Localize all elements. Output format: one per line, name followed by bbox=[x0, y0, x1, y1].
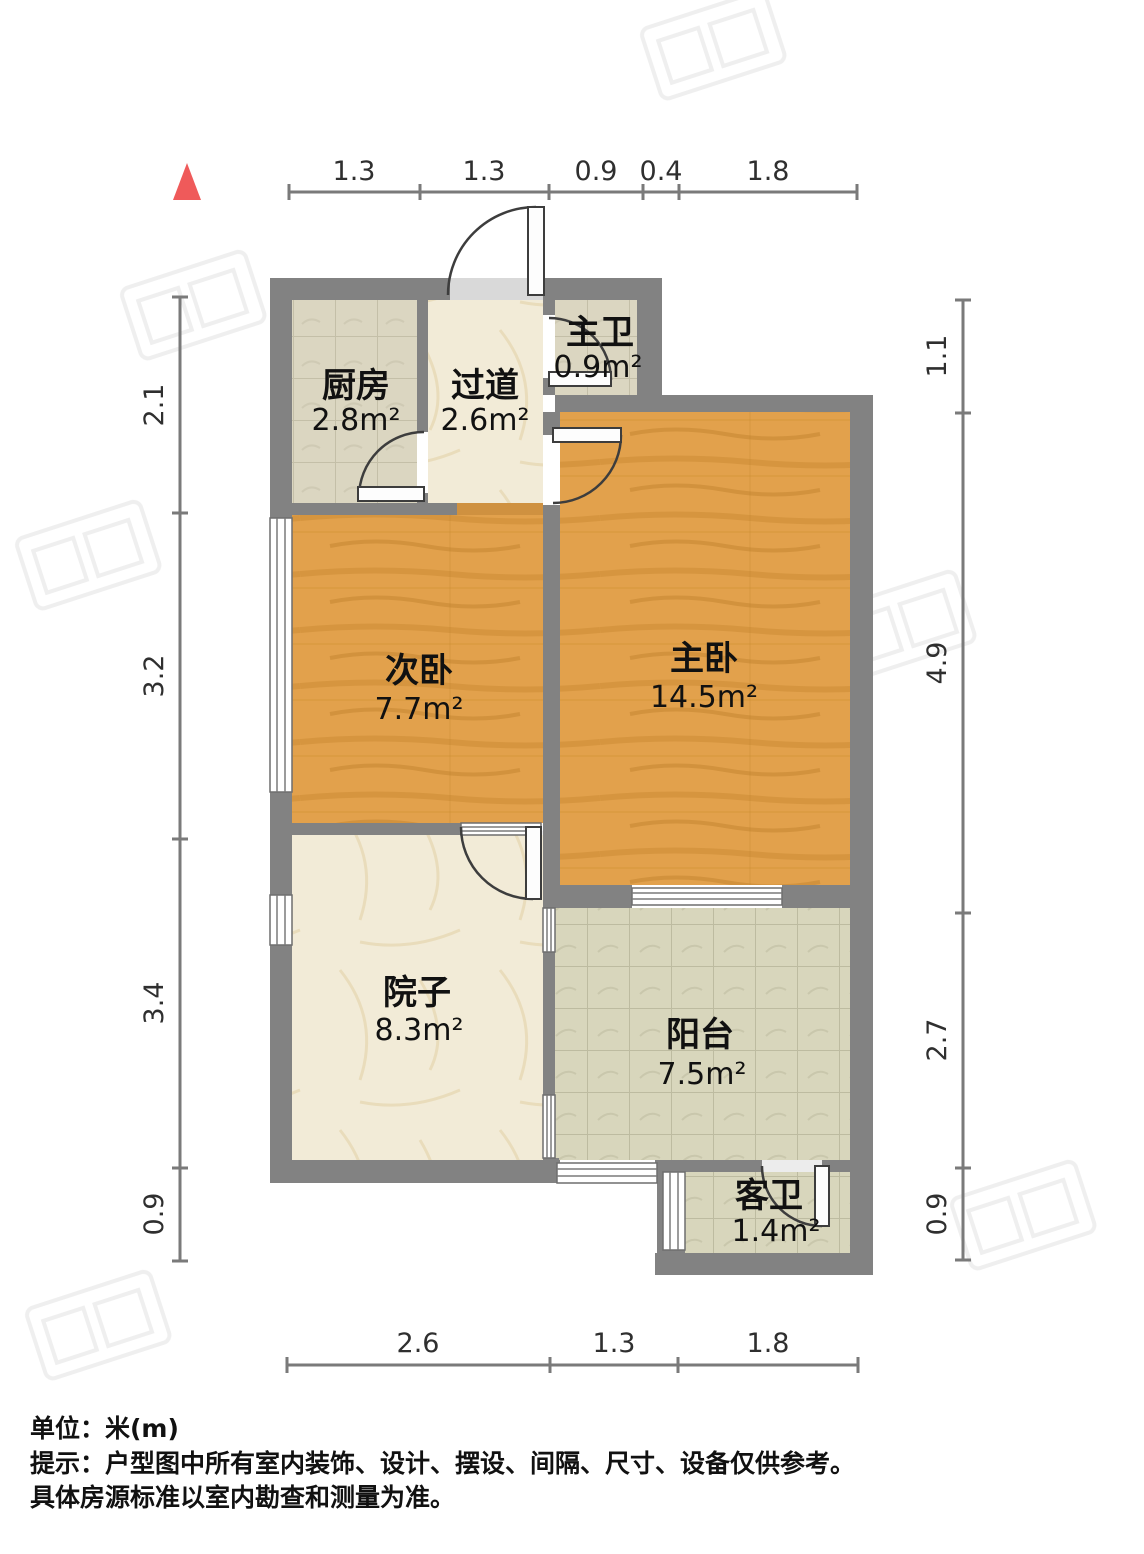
dim-top-1: 1.3 bbox=[333, 156, 376, 187]
master-bedroom-area: 14.5m² bbox=[650, 680, 758, 715]
dim-top-5: 1.8 bbox=[747, 156, 790, 187]
dim-right-1: 1.1 bbox=[922, 335, 953, 378]
dimension-top: 1.3 1.3 0.9 0.4 1.8 bbox=[289, 156, 857, 200]
courtyard-balcony-lower-window bbox=[543, 1095, 555, 1158]
hallway-area: 2.6m² bbox=[441, 403, 530, 438]
guest-bathroom-label: 客卫 bbox=[735, 1176, 803, 1216]
hallway-bedroom-opening bbox=[457, 503, 543, 515]
courtyard-area: 8.3m² bbox=[375, 1013, 464, 1048]
footer-notes: 单位：米(m) 提示：户型图中所有室内装饰、设计、摆设、间隔、尺寸、设备仅供参考… bbox=[30, 1414, 855, 1512]
wall-segment bbox=[543, 505, 560, 823]
dim-bottom-1: 2.6 bbox=[397, 1328, 440, 1359]
master-bathroom-label: 主卫 bbox=[566, 313, 634, 353]
courtyard-left-window bbox=[270, 895, 292, 945]
second-bedroom-area: 7.7m² bbox=[375, 692, 464, 727]
dim-left-4: 0.9 bbox=[139, 1193, 170, 1236]
dim-right-4: 0.9 bbox=[922, 1193, 953, 1236]
wall-segment bbox=[543, 952, 555, 1095]
wall-segment bbox=[543, 278, 662, 300]
wall-segment bbox=[270, 1160, 560, 1183]
watermark-stamp bbox=[120, 250, 267, 361]
wall-segment bbox=[417, 300, 428, 432]
watermark-stamp bbox=[25, 1270, 172, 1381]
dim-right-3: 2.7 bbox=[922, 1019, 953, 1062]
watermark-stamp bbox=[15, 500, 162, 611]
dim-bottom-3: 1.8 bbox=[747, 1328, 790, 1359]
dim-top-2: 1.3 bbox=[463, 156, 506, 187]
guest-bathroom-threshold bbox=[762, 1160, 822, 1172]
second-bedroom-label: 次卧 bbox=[385, 651, 453, 691]
master-bedroom-balcony-window bbox=[632, 888, 782, 905]
dimension-bottom: 2.6 1.3 1.8 bbox=[287, 1328, 858, 1373]
balcony-label: 阳台 bbox=[666, 1015, 734, 1055]
guest-bathroom-left-window bbox=[663, 1172, 685, 1250]
dim-right-2: 4.9 bbox=[922, 642, 953, 685]
tip-note-line2: 具体房源标准以室内勘查和测量为准。 bbox=[30, 1483, 455, 1512]
wall-segment bbox=[555, 885, 632, 908]
floorplan-svg: 厨房 2.8m² 过道 2.6m² 主卫 0.9m² 次卧 7.7m² 主卧 1… bbox=[0, 0, 1144, 1554]
watermark-stamp bbox=[640, 0, 787, 100]
dim-bottom-2: 1.3 bbox=[593, 1328, 636, 1359]
dim-left-1: 2.1 bbox=[139, 384, 170, 427]
wall-segment bbox=[655, 1253, 873, 1275]
dim-top-3: 0.9 bbox=[575, 156, 618, 187]
wall-segment bbox=[270, 823, 461, 835]
dim-left-2: 3.2 bbox=[139, 655, 170, 698]
wall-segment bbox=[270, 503, 457, 515]
master-bedroom-label: 主卧 bbox=[670, 639, 738, 679]
unit-note: 单位：米(m) bbox=[30, 1414, 179, 1443]
kitchen-label: 厨房 bbox=[322, 366, 390, 406]
wall-segment bbox=[782, 885, 873, 908]
balcony-area: 7.5m² bbox=[658, 1057, 747, 1092]
wall-segment bbox=[270, 278, 450, 300]
guest-bathroom-area: 1.4m² bbox=[732, 1214, 821, 1249]
courtyard-label: 院子 bbox=[383, 973, 451, 1013]
dimension-right: 1.1 4.9 2.7 0.9 bbox=[922, 300, 971, 1260]
wall-segment bbox=[655, 1160, 762, 1172]
master-bathroom-area: 0.9m² bbox=[554, 350, 643, 385]
kitchen-area: 2.8m² bbox=[312, 403, 401, 438]
courtyard-balcony-upper-window bbox=[543, 908, 555, 952]
dim-left-3: 3.4 bbox=[139, 982, 170, 1025]
north-arrow-icon bbox=[173, 163, 201, 200]
hallway-label: 过道 bbox=[451, 366, 519, 406]
wall-segment bbox=[555, 395, 873, 412]
dimension-left: 2.1 3.2 3.4 0.9 bbox=[139, 297, 188, 1261]
watermark-stamp bbox=[950, 1160, 1097, 1271]
dim-top-4: 0.4 bbox=[640, 156, 683, 187]
wall-segment bbox=[850, 412, 873, 1275]
second-bedroom-left-window bbox=[270, 518, 292, 792]
balcony-bottom-window bbox=[557, 1163, 657, 1183]
wall-segment bbox=[543, 300, 555, 315]
tip-note-line1: 提示：户型图中所有室内装饰、设计、摆设、间隔、尺寸、设备仅供参考。 bbox=[30, 1449, 855, 1478]
